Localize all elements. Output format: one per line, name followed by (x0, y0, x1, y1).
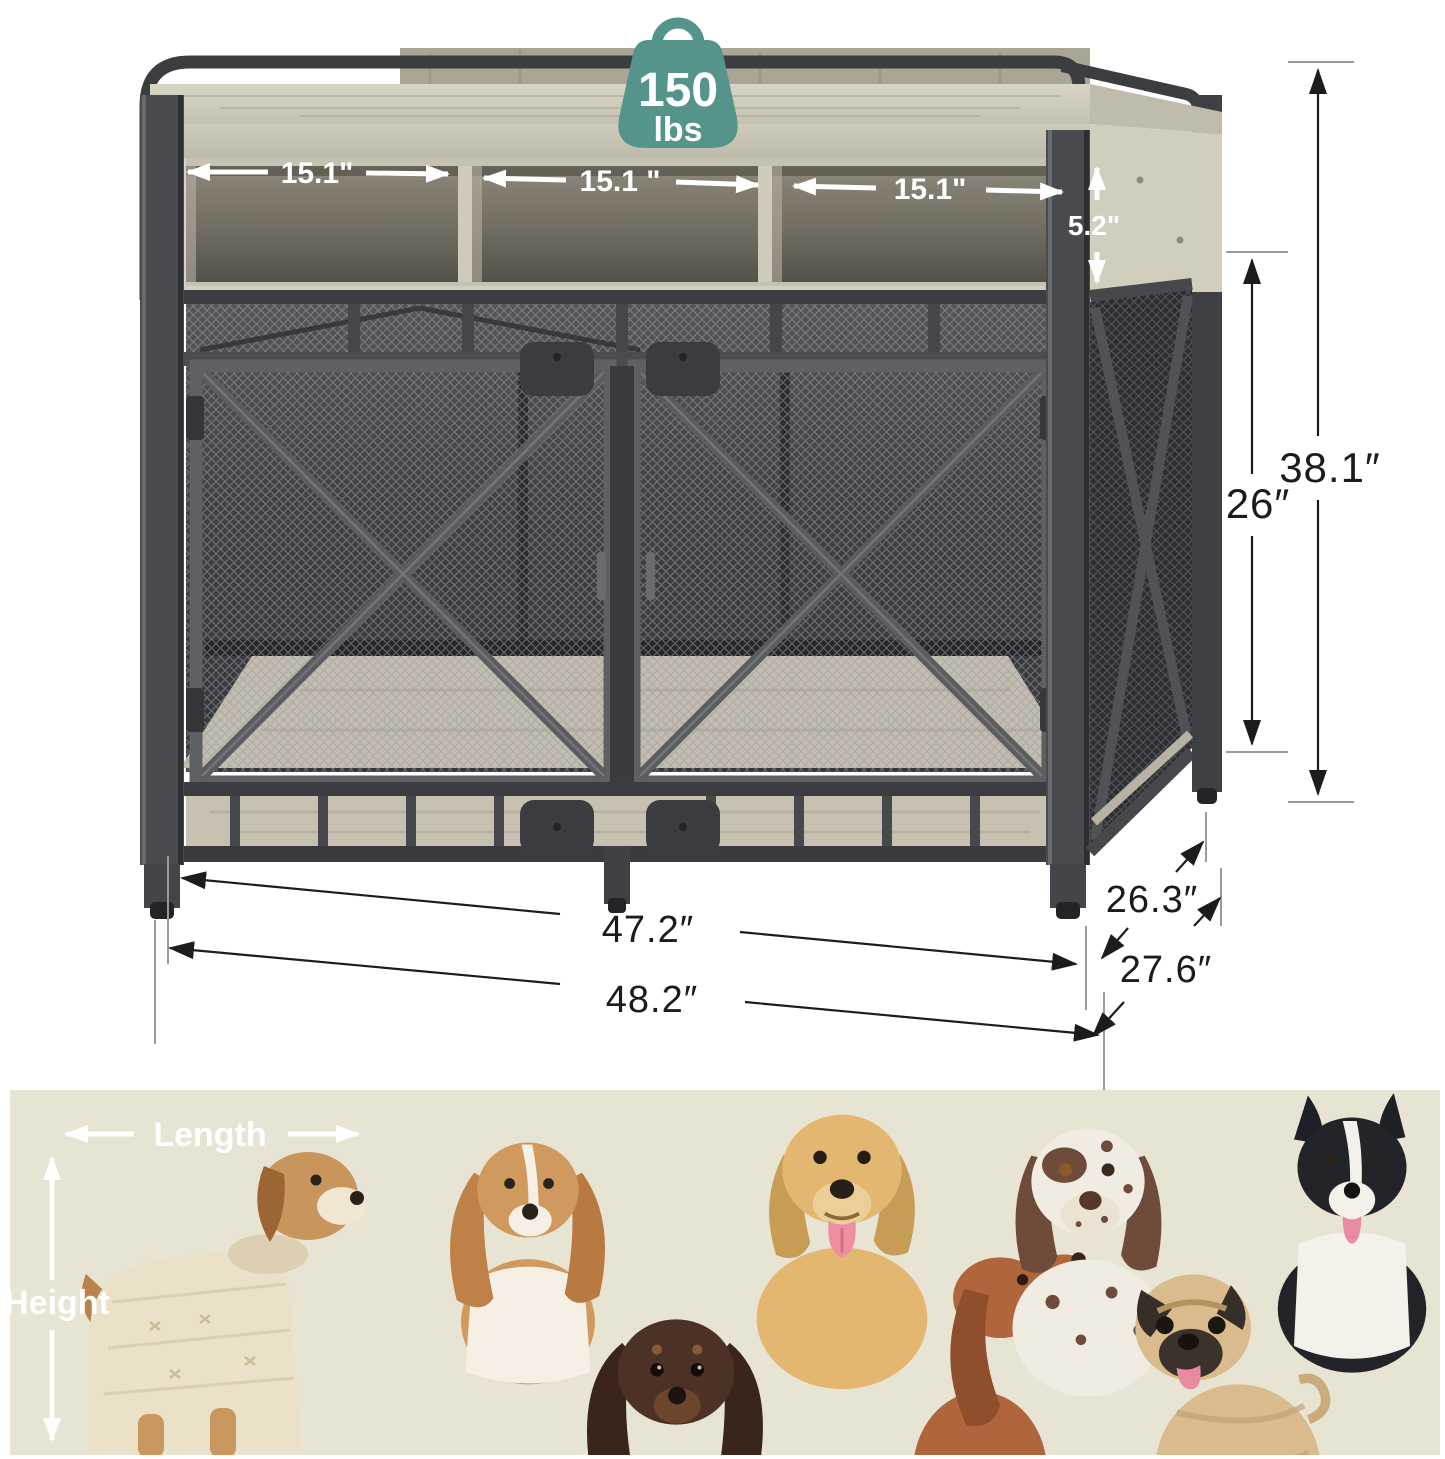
cage-top-rail (140, 290, 1090, 304)
dog-photo-cocker-spaniel (450, 1142, 605, 1384)
center-leg (604, 846, 630, 904)
weight-value: 150 (638, 64, 718, 117)
door-handle-right (646, 552, 655, 600)
weight-capacity-badge: 150 lbs (618, 23, 737, 149)
dimension-inner-height: 26″ (1226, 252, 1291, 752)
hutch-right-side-panel (1090, 124, 1222, 292)
floor-front-edge (186, 796, 1054, 846)
svg-text:5.2": 5.2" (1068, 210, 1120, 241)
front-right-leg (1050, 864, 1086, 908)
svg-text:15.1": 15.1" (894, 173, 967, 206)
dimension-overall-height: 38.1″ (1279, 62, 1381, 802)
dog-photo-dalmatian (1012, 1129, 1163, 1397)
svg-text:15.1": 15.1" (281, 157, 354, 190)
height-label: Height (4, 1284, 110, 1322)
dimension-depth: 26.3″ (1102, 812, 1221, 958)
door-handle-left (597, 552, 606, 600)
cubby-divider (458, 166, 472, 282)
front-left-post (140, 95, 184, 865)
product-dimension-infographic: 150 lbs 15.1" 15.1 " 15.1" 5.2" (0, 0, 1445, 1459)
front-left-leg (144, 864, 180, 908)
cubby-divider (758, 166, 772, 282)
svg-text:26.3″: 26.3″ (1106, 879, 1198, 921)
door-center-gap (610, 366, 634, 782)
svg-text:48.2″: 48.2″ (606, 979, 698, 1021)
svg-text:26″: 26″ (1226, 480, 1291, 527)
door-sill-rail (140, 782, 1090, 796)
door-hinge (186, 396, 204, 440)
door-hinge (186, 688, 204, 732)
svg-text:15.1 ": 15.1 " (580, 165, 661, 198)
weight-unit: lbs (653, 111, 702, 149)
back-right-leg (1192, 748, 1222, 792)
size-guide: Length Height (4, 1090, 1440, 1459)
svg-text:27.6″: 27.6″ (1120, 949, 1212, 991)
length-label: Length (153, 1116, 266, 1154)
svg-text:47.2″: 47.2″ (602, 909, 694, 951)
svg-text:38.1″: 38.1″ (1279, 444, 1381, 491)
infographic-canvas: 150 lbs 15.1" 15.1 " 15.1" 5.2" (0, 0, 1445, 1459)
